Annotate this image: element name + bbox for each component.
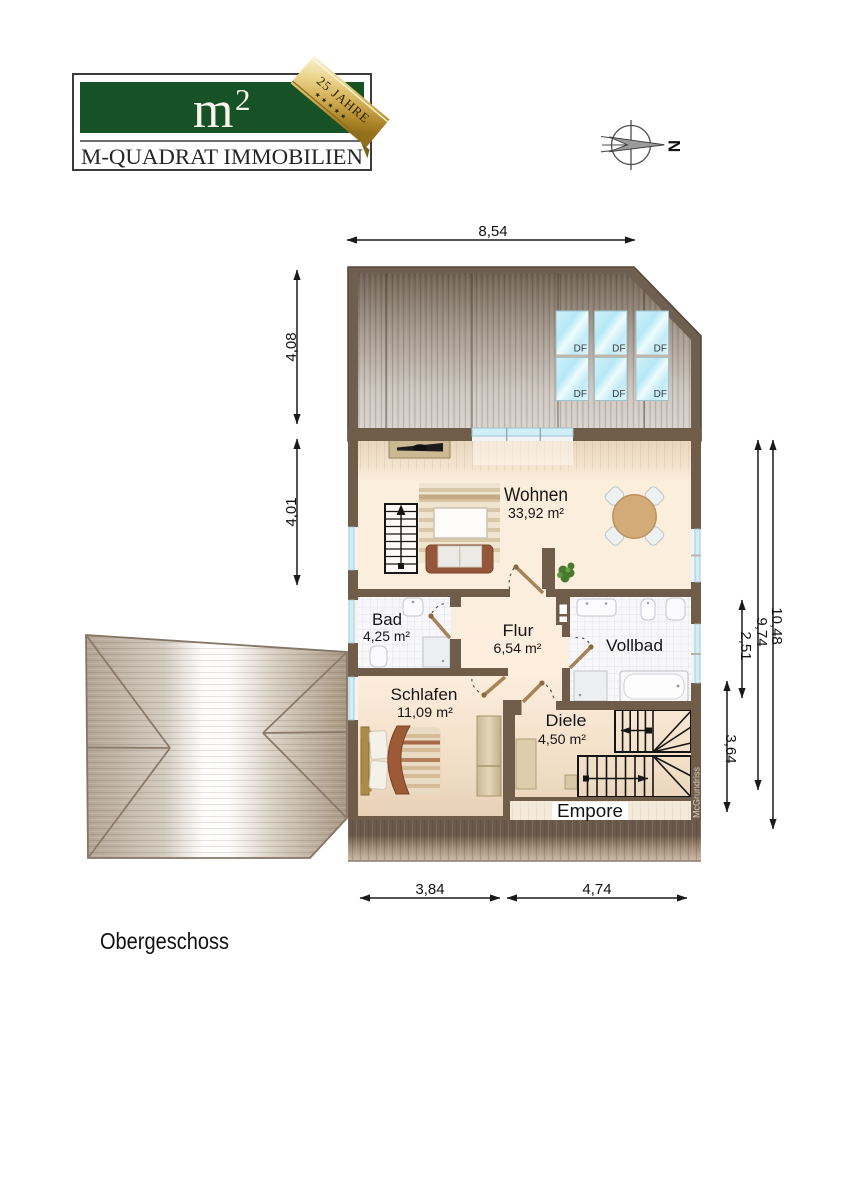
svg-text:m: m	[193, 82, 233, 139]
svg-text:2,51: 2,51	[737, 631, 754, 660]
svg-text:DF: DF	[654, 389, 667, 400]
svg-text:DF: DF	[612, 389, 625, 400]
svg-text:M-QUADRAT IMMOBILIEN: M-QUADRAT IMMOBILIEN	[81, 144, 363, 169]
svg-text:Obergeschoss: Obergeschoss	[100, 928, 229, 954]
svg-text:4,74: 4,74	[582, 881, 611, 898]
svg-text:4,01: 4,01	[283, 497, 300, 526]
svg-text:2: 2	[235, 82, 251, 117]
svg-text:Vollbad: Vollbad	[606, 636, 663, 655]
svg-text:Wohnen: Wohnen	[504, 485, 568, 506]
svg-text:DF: DF	[612, 344, 625, 355]
svg-text:33,92 m²: 33,92 m²	[508, 506, 564, 522]
svg-text:11,09 m²: 11,09 m²	[397, 704, 453, 720]
svg-text:4,25 m²: 4,25 m²	[363, 628, 410, 644]
svg-text:N: N	[665, 140, 684, 152]
svg-text:DF: DF	[574, 389, 587, 400]
svg-text:DF: DF	[574, 344, 587, 355]
svg-text:Bad: Bad	[372, 610, 402, 629]
svg-text:DF: DF	[654, 344, 667, 355]
svg-text:McGrundriss: McGrundriss	[692, 766, 702, 818]
svg-text:3,84: 3,84	[415, 881, 444, 898]
svg-text:Flur: Flur	[503, 621, 534, 640]
svg-text:4,08: 4,08	[283, 332, 300, 361]
svg-text:Empore: Empore	[557, 801, 623, 821]
svg-text:9,74: 9,74	[753, 617, 770, 646]
svg-text:Schlafen: Schlafen	[391, 685, 458, 704]
svg-text:4,50 m²: 4,50 m²	[538, 731, 586, 747]
svg-text:3,64: 3,64	[722, 734, 739, 763]
svg-text:Diele: Diele	[546, 711, 587, 730]
svg-text:6,54 m²: 6,54 m²	[494, 640, 542, 656]
svg-text:8,54: 8,54	[478, 223, 507, 240]
